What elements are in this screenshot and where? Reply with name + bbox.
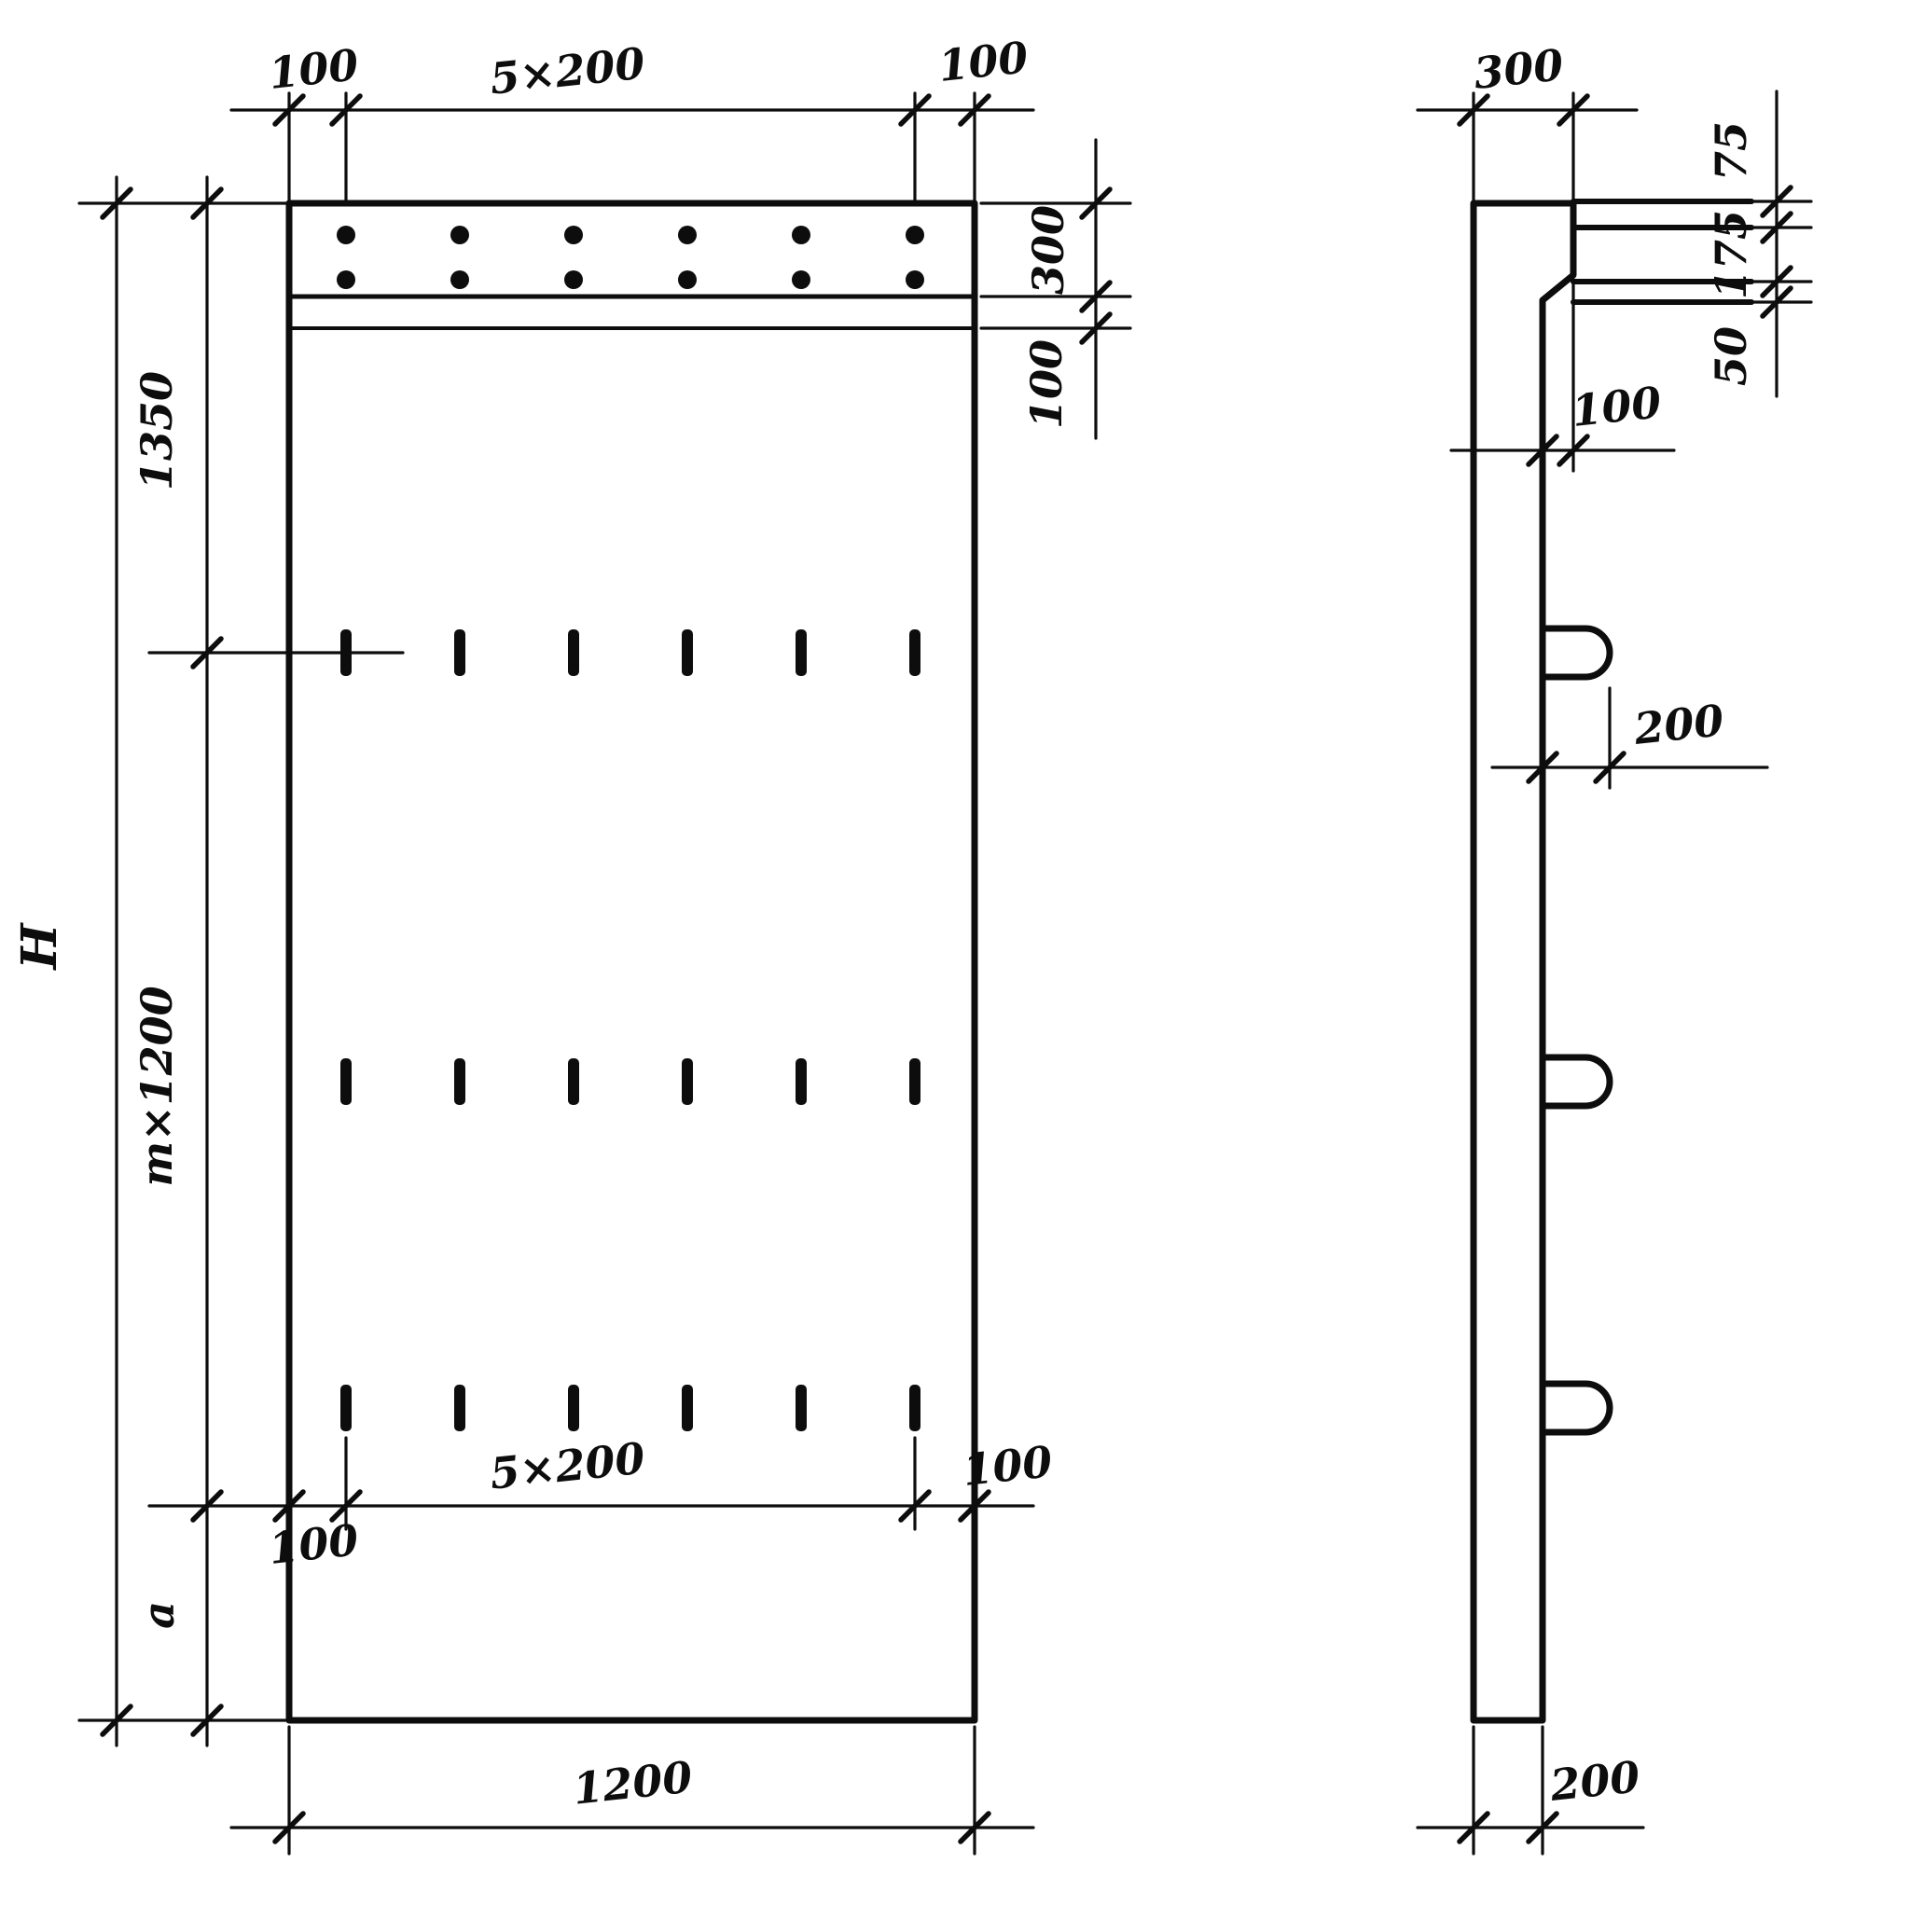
panel-drawing: 100 5×200 100 300 100 H 1350 m×1200 <box>0 0 1910 1932</box>
dim-a: a <box>133 1601 184 1629</box>
dim-band-100: 100 <box>1021 339 1072 429</box>
dim-side-300: 300 <box>1472 39 1566 99</box>
rivet-dots <box>337 226 924 289</box>
dim-top-right-100: 100 <box>936 32 1031 91</box>
dim-top-5x200: 5×200 <box>488 38 647 104</box>
dim-1200: 1200 <box>571 1752 695 1815</box>
dim-side-bottom-200: 200 <box>1547 1751 1642 1811</box>
dim-bottom-5x200: 5×200 <box>488 1433 647 1499</box>
side-view: 300 75 175 50 100 200 <box>1418 39 1910 1854</box>
wall-profile <box>1474 203 1573 1720</box>
anchor-loops <box>1543 628 1910 1432</box>
panel-outline <box>289 203 975 1720</box>
side-right-dimensions: 75 175 50 <box>1706 91 1811 396</box>
dim-top-left-100: 100 <box>267 39 361 99</box>
front-inner-bottom-dimension: 100 5×200 100 <box>149 1433 1055 1574</box>
drawing-sheet: 100 5×200 100 300 100 H 1350 m×1200 <box>0 0 1910 1932</box>
dim-bottom-left-100: 100 <box>267 1514 361 1574</box>
dim-175: 175 <box>1706 210 1756 299</box>
dim-1350: 1350 <box>131 371 182 490</box>
dim-mx1200: m×1200 <box>131 986 182 1186</box>
side-bottom-dimension: 200 <box>1418 1727 1643 1854</box>
dim-bottom-right-100: 100 <box>961 1436 1055 1496</box>
front-bottom-dimension: 1200 <box>231 1727 1033 1854</box>
front-right-dimension: 300 100 <box>981 140 1130 438</box>
dim-loop-200: 200 <box>1631 695 1726 754</box>
side-top-dimension: 300 <box>1418 39 1637 203</box>
side-loop-dimension: 200 <box>1492 688 1767 788</box>
side-step-dimension: 100 <box>1451 280 1674 471</box>
front-top-dimension: 100 5×200 100 <box>231 32 1033 203</box>
dim-75: 75 <box>1706 121 1756 181</box>
dim-step-100: 100 <box>1570 377 1664 436</box>
dim-50: 50 <box>1706 326 1756 386</box>
slot-marks <box>340 629 920 1431</box>
dim-overall-H: H <box>11 922 68 972</box>
front-view: 100 5×200 100 300 100 H 1350 m×1200 <box>11 32 1130 1854</box>
dim-plate-300: 300 <box>1023 205 1073 295</box>
